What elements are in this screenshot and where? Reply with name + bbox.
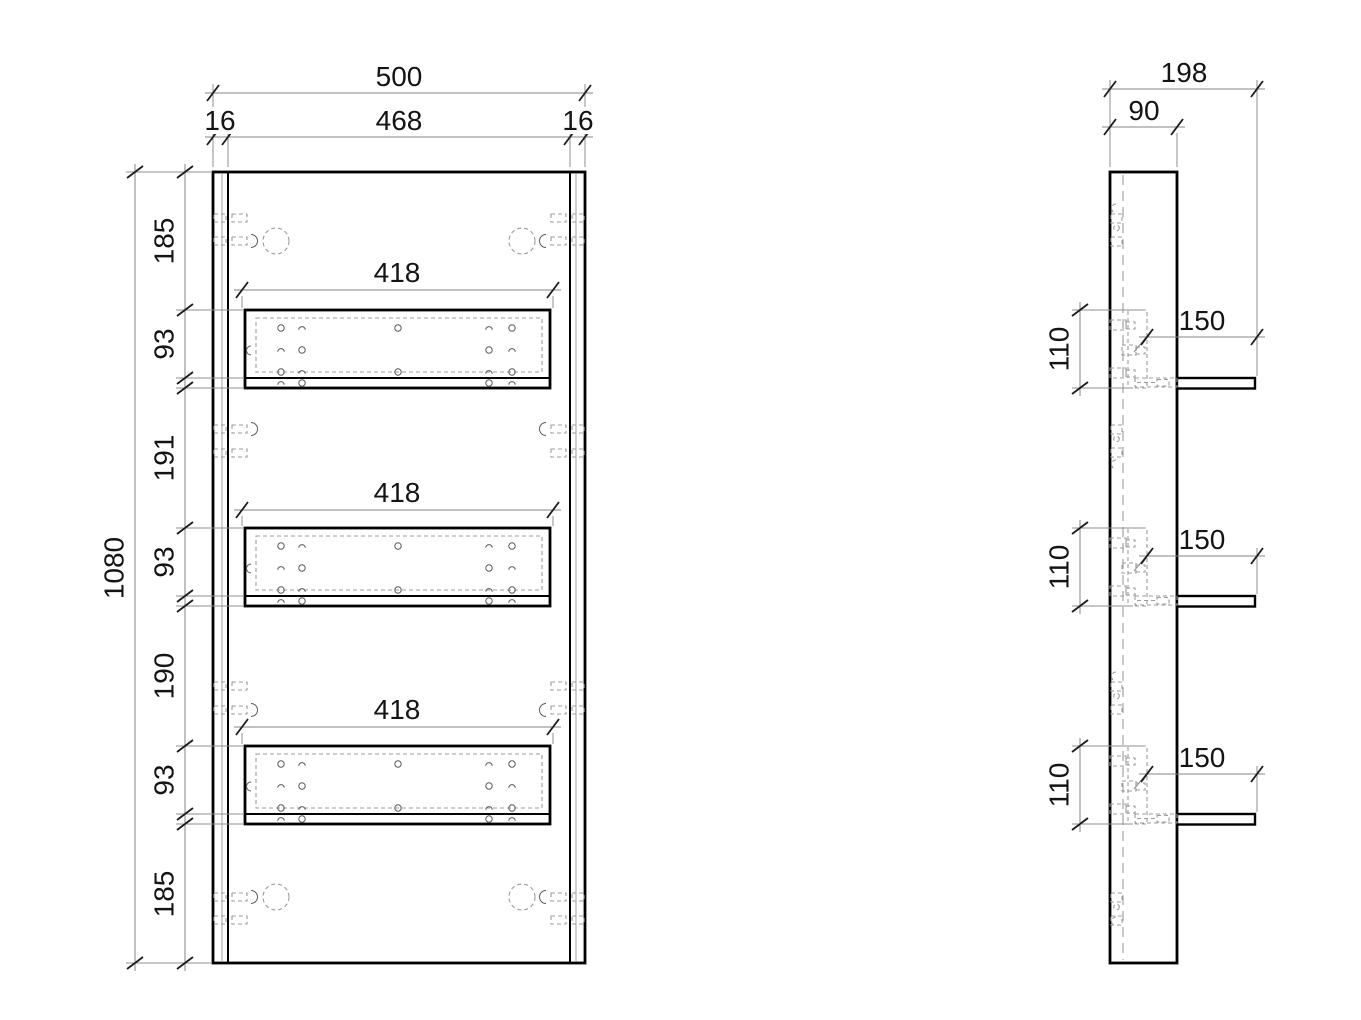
dim-label-side-shelf1-height: 110 bbox=[1044, 327, 1075, 372]
drawing-canvas: 500 16 468 16 418 418 418 1080 185 93 19… bbox=[0, 0, 1361, 1020]
dim-label-side-panel-depth: 90 bbox=[1128, 95, 1159, 126]
side-shelf-3 bbox=[1177, 814, 1255, 825]
dim-label-side-shelf1-depth: 150 bbox=[1179, 305, 1226, 336]
dim-label-side-shelf2-height: 110 bbox=[1044, 545, 1075, 590]
dim-label-shelf2-width: 418 bbox=[374, 477, 421, 508]
shelf-2 bbox=[245, 528, 550, 606]
technical-drawing: 500 16 468 16 418 418 418 1080 185 93 19… bbox=[0, 0, 1361, 1020]
dim-label-front-edge-right: 16 bbox=[562, 105, 593, 136]
front-shelves bbox=[245, 310, 550, 824]
dim-label-chain-2: 93 bbox=[149, 328, 180, 359]
shelf-1 bbox=[245, 310, 550, 388]
dim-label-side-shelf3-depth: 150 bbox=[1179, 742, 1226, 773]
dim-label-chain-5: 190 bbox=[149, 653, 180, 700]
dim-label-chain-4: 93 bbox=[149, 546, 180, 577]
dim-label-chain-6: 93 bbox=[149, 764, 180, 795]
dim-label-front-edge-left: 16 bbox=[204, 105, 235, 136]
dim-label-shelf3-width: 418 bbox=[374, 694, 421, 725]
side-shelf-1 bbox=[1177, 378, 1255, 389]
dim-label-shelf1-width: 418 bbox=[374, 257, 421, 288]
dim-label-front-height-total: 1080 bbox=[99, 537, 130, 599]
side-shelf-2 bbox=[1177, 596, 1255, 607]
dim-label-front-width-total: 500 bbox=[376, 61, 423, 92]
side-panel-outline bbox=[1110, 172, 1177, 963]
dim-label-chain-3: 191 bbox=[149, 435, 180, 482]
dim-label-side-shelf3-height: 110 bbox=[1044, 763, 1075, 808]
dim-label-chain-1: 185 bbox=[149, 218, 180, 265]
dim-label-side-shelf2-depth: 150 bbox=[1179, 524, 1226, 555]
dim-label-front-width-inner: 468 bbox=[376, 105, 423, 136]
shelf-3 bbox=[245, 746, 550, 824]
dim-label-chain-7: 185 bbox=[149, 871, 180, 918]
side-panel bbox=[1110, 172, 1177, 963]
dim-label-side-depth-total: 198 bbox=[1161, 57, 1208, 88]
